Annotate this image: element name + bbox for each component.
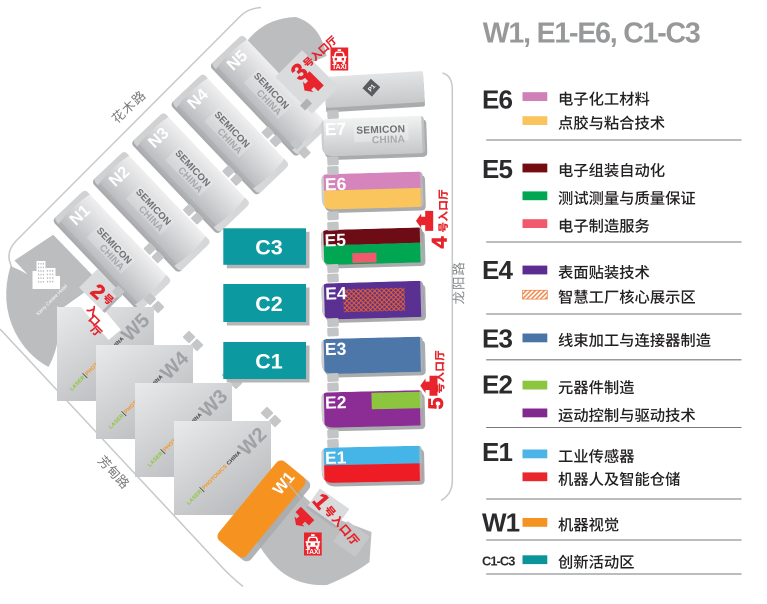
- svg-text:E2: E2: [482, 369, 512, 399]
- svg-text:C3: C3: [255, 236, 283, 260]
- svg-text:5: 5: [424, 398, 448, 410]
- svg-text:W1: W1: [482, 507, 520, 537]
- svg-text:C1: C1: [255, 350, 283, 374]
- svg-text:C2: C2: [255, 292, 283, 316]
- svg-text:E2: E2: [325, 392, 347, 413]
- svg-text:E3: E3: [482, 324, 512, 354]
- svg-text:E6: E6: [325, 174, 347, 195]
- svg-text:E6: E6: [482, 85, 512, 115]
- svg-text:E4: E4: [325, 283, 347, 304]
- svg-text:CHINA: CHINA: [372, 134, 406, 146]
- svg-text:E1: E1: [325, 447, 347, 467]
- svg-text:C1-C3: C1-C3: [482, 554, 515, 569]
- svg-text:E4: E4: [482, 255, 513, 285]
- svg-text:W1, E1-E6, C1-C3: W1, E1-E6, C1-C3: [483, 18, 700, 50]
- svg-text:4: 4: [428, 237, 452, 249]
- svg-text:E7: E7: [324, 119, 346, 140]
- svg-text:E5: E5: [482, 154, 512, 184]
- svg-text:E3: E3: [325, 339, 347, 360]
- svg-text:E5: E5: [324, 230, 346, 251]
- svg-text:E1: E1: [482, 437, 512, 467]
